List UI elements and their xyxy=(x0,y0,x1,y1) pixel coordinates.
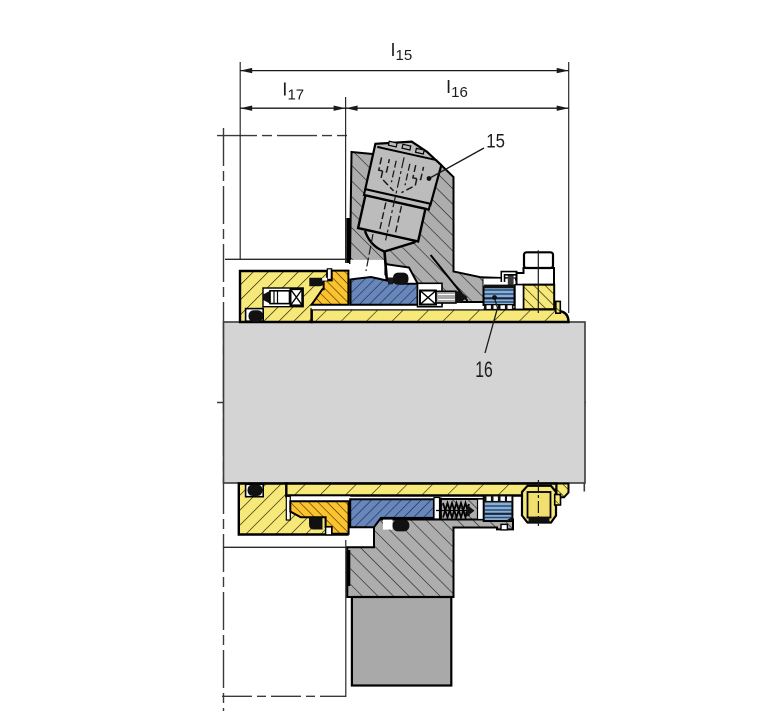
svg-text:16: 16 xyxy=(475,357,493,382)
svg-text:15: 15 xyxy=(486,130,505,152)
